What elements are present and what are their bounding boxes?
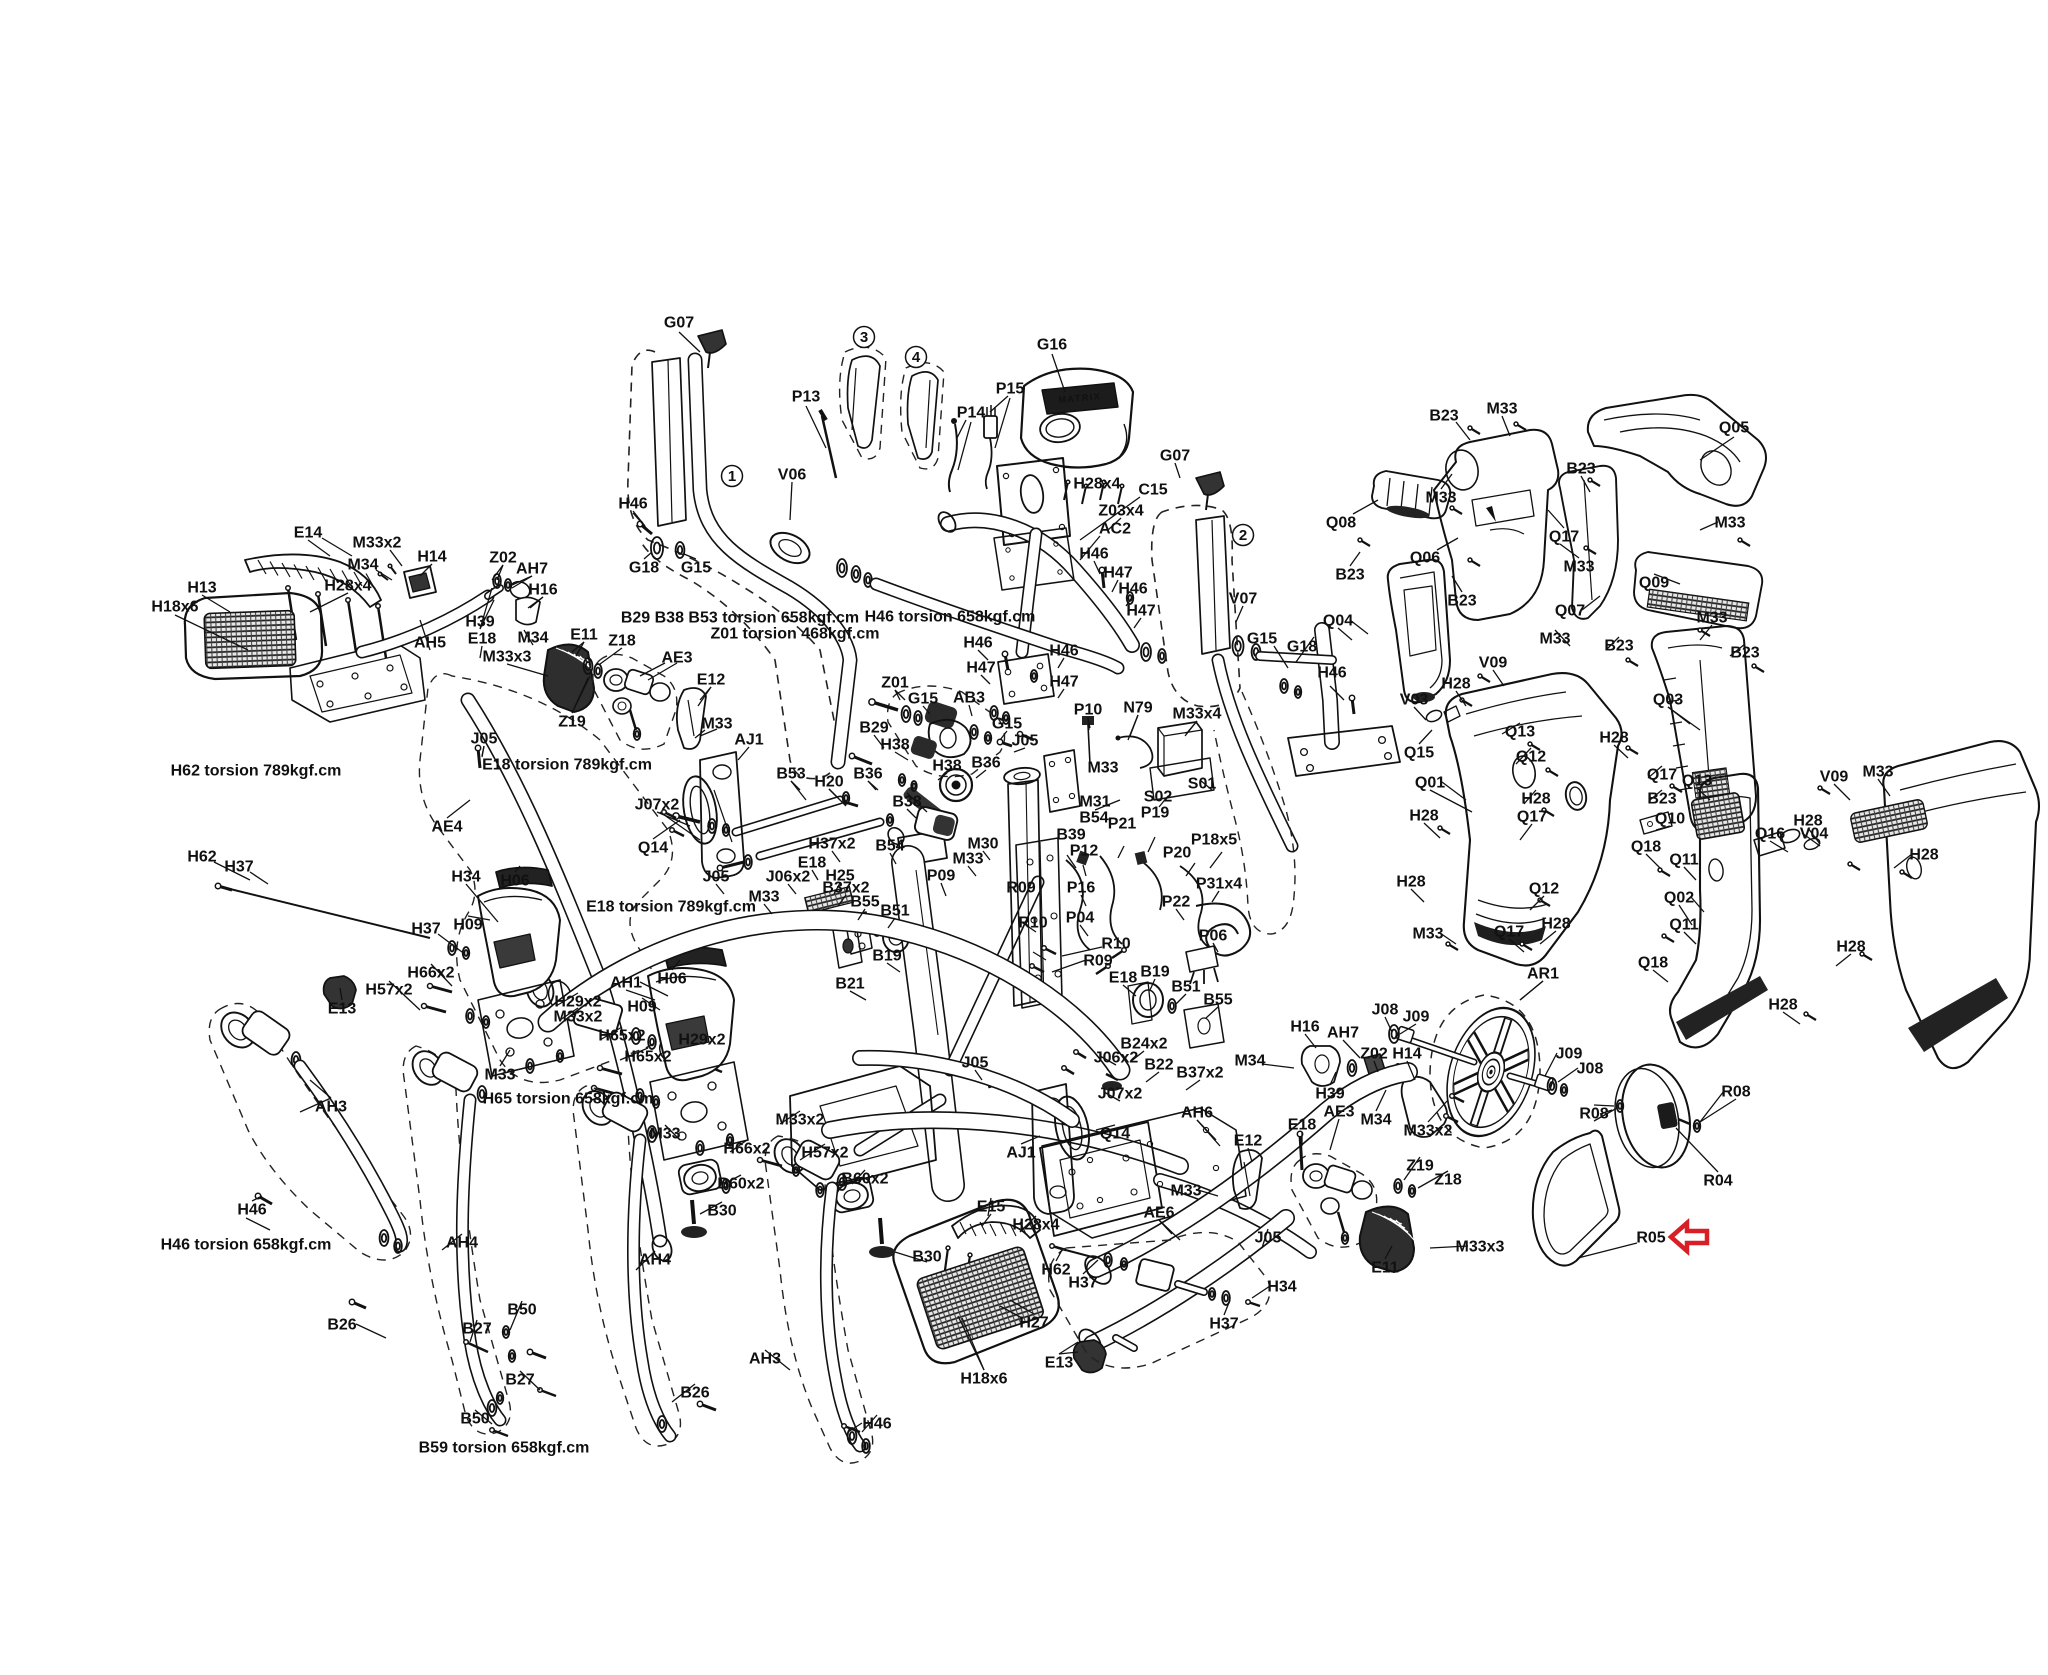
svg-text:R10: R10 — [1101, 936, 1130, 953]
svg-text:E11: E11 — [570, 627, 598, 644]
svg-text:B19: B19 — [1140, 964, 1169, 981]
svg-text:M34: M34 — [347, 557, 378, 574]
svg-text:AH7: AH7 — [1327, 1025, 1359, 1042]
svg-text:AH3: AH3 — [315, 1099, 347, 1116]
svg-text:B60x2: B60x2 — [841, 1171, 888, 1188]
svg-text:H47: H47 — [1103, 565, 1132, 582]
svg-text:B29 B38 B53 torsion 658kgf.cm: B29 B38 B53 torsion 658kgf.cm — [621, 610, 859, 627]
svg-text:M33x2: M33x2 — [776, 1112, 825, 1129]
svg-text:AE6: AE6 — [1143, 1205, 1174, 1222]
svg-text:Q05: Q05 — [1719, 420, 1749, 437]
svg-text:H28x4: H28x4 — [324, 578, 371, 595]
svg-text:S01: S01 — [1188, 776, 1217, 793]
svg-text:M34: M34 — [1234, 1053, 1265, 1070]
svg-text:J06x2: J06x2 — [766, 869, 811, 886]
svg-text:M33: M33 — [1486, 401, 1517, 418]
svg-text:H39: H39 — [1315, 1086, 1344, 1103]
svg-text:H28: H28 — [1521, 791, 1550, 808]
svg-text:Z01 torsion 468kgf.cm: Z01 torsion 468kgf.cm — [711, 626, 880, 643]
svg-text:J08: J08 — [1372, 1002, 1399, 1019]
svg-text:H09: H09 — [627, 999, 656, 1016]
svg-text:AJ1: AJ1 — [1006, 1145, 1035, 1162]
svg-text:1: 1 — [728, 468, 736, 485]
svg-text:G15: G15 — [1247, 631, 1277, 648]
svg-text:Z18: Z18 — [1434, 1172, 1462, 1189]
svg-text:M33: M33 — [1696, 610, 1727, 627]
svg-text:Q08: Q08 — [1326, 515, 1356, 532]
svg-text:R09: R09 — [1083, 953, 1112, 970]
svg-text:E11: E11 — [1371, 1260, 1399, 1277]
svg-text:M31: M31 — [1079, 794, 1110, 811]
svg-text:J05: J05 — [1012, 733, 1039, 750]
svg-text:Z01: Z01 — [881, 675, 909, 692]
svg-text:G15: G15 — [908, 691, 938, 708]
svg-text:M33: M33 — [1425, 490, 1456, 507]
svg-text:R04: R04 — [1703, 1173, 1732, 1190]
svg-text:P16: P16 — [1067, 880, 1096, 897]
svg-text:Z18: Z18 — [608, 633, 636, 650]
svg-text:H06: H06 — [500, 873, 529, 890]
svg-text:H65 torsion 658kgf.cm: H65 torsion 658kgf.cm — [483, 1091, 654, 1108]
svg-text:V09: V09 — [1820, 769, 1849, 786]
svg-text:Q15: Q15 — [1404, 745, 1434, 762]
svg-text:P22: P22 — [1162, 894, 1191, 911]
svg-text:Q17: Q17 — [1517, 809, 1547, 826]
svg-text:Z02: Z02 — [489, 550, 517, 567]
svg-text:G07: G07 — [664, 315, 694, 332]
svg-text:M33: M33 — [952, 851, 983, 868]
svg-text:J05: J05 — [962, 1055, 989, 1072]
svg-text:H06: H06 — [657, 971, 686, 988]
svg-text:J08: J08 — [1577, 1061, 1604, 1078]
svg-text:B54: B54 — [875, 838, 904, 855]
svg-text:B50: B50 — [507, 1302, 536, 1319]
svg-text:E12: E12 — [697, 672, 726, 689]
svg-text:V09: V09 — [1479, 655, 1508, 672]
svg-text:M33: M33 — [1539, 631, 1570, 648]
svg-text:V06: V06 — [778, 467, 807, 484]
svg-text:B23: B23 — [1604, 638, 1633, 655]
svg-text:B53: B53 — [776, 766, 805, 783]
svg-text:H29x2: H29x2 — [678, 1032, 725, 1049]
svg-text:M33: M33 — [484, 1067, 515, 1084]
svg-text:S02: S02 — [1144, 789, 1173, 806]
svg-text:M33: M33 — [748, 889, 779, 906]
svg-text:B23: B23 — [1447, 593, 1476, 610]
svg-text:J06x2: J06x2 — [1094, 1050, 1139, 1067]
svg-text:H37: H37 — [1068, 1275, 1097, 1292]
svg-text:H66x2: H66x2 — [723, 1141, 770, 1158]
svg-text:C15: C15 — [1138, 482, 1167, 499]
svg-text:B51: B51 — [1171, 979, 1200, 996]
svg-text:Q12: Q12 — [1516, 749, 1546, 766]
svg-text:G15: G15 — [681, 560, 711, 577]
svg-text:H46: H46 — [1317, 665, 1346, 682]
svg-text:4: 4 — [912, 349, 921, 366]
svg-text:H14: H14 — [417, 549, 446, 566]
svg-text:G07: G07 — [1160, 448, 1190, 465]
svg-text:J07x2: J07x2 — [635, 797, 680, 814]
svg-text:B19: B19 — [872, 948, 901, 965]
svg-text:Q13: Q13 — [1682, 773, 1712, 790]
svg-text:J05: J05 — [1255, 1230, 1282, 1247]
svg-text:P10: P10 — [1074, 702, 1103, 719]
svg-text:P04: P04 — [1066, 910, 1095, 927]
svg-text:H28x4: H28x4 — [1073, 476, 1120, 493]
svg-text:H37: H37 — [224, 859, 253, 876]
svg-text:P31x4: P31x4 — [1196, 876, 1242, 893]
svg-text:M33x3: M33x3 — [483, 649, 532, 666]
svg-text:M33: M33 — [649, 1126, 680, 1143]
svg-text:P21: P21 — [1108, 816, 1137, 833]
svg-text:E13: E13 — [1045, 1355, 1074, 1372]
svg-text:Q07: Q07 — [1555, 603, 1585, 620]
svg-text:Q11: Q11 — [1669, 917, 1698, 934]
svg-text:B26: B26 — [327, 1317, 356, 1334]
svg-text:M33x2: M33x2 — [353, 535, 402, 552]
svg-text:P18x5: P18x5 — [1191, 832, 1237, 849]
svg-text:E12: E12 — [1234, 1133, 1263, 1150]
svg-text:H18x6: H18x6 — [960, 1371, 1007, 1388]
svg-text:H28x4: H28x4 — [1012, 1217, 1059, 1234]
svg-text:R08: R08 — [1579, 1106, 1608, 1123]
svg-text:H28: H28 — [1396, 874, 1425, 891]
svg-text:G16: G16 — [1037, 337, 1067, 354]
svg-text:3: 3 — [860, 329, 868, 346]
svg-text:P06: P06 — [1199, 928, 1228, 945]
svg-text:B23: B23 — [1335, 567, 1364, 584]
svg-text:B54: B54 — [1079, 810, 1108, 827]
svg-text:M34: M34 — [1360, 1112, 1391, 1129]
svg-text:R09: R09 — [1006, 880, 1035, 897]
svg-text:H34: H34 — [451, 869, 480, 886]
svg-text:H14: H14 — [1392, 1046, 1421, 1063]
svg-text:AE3: AE3 — [661, 650, 692, 667]
svg-text:B23: B23 — [1566, 461, 1595, 478]
svg-text:G18: G18 — [629, 560, 659, 577]
svg-text:V03: V03 — [1400, 692, 1429, 709]
svg-text:B55: B55 — [1203, 992, 1232, 1009]
svg-text:AE3: AE3 — [1323, 1104, 1354, 1121]
svg-text:H38: H38 — [880, 737, 909, 754]
svg-text:H28: H28 — [1541, 916, 1570, 933]
svg-text:H16: H16 — [528, 582, 557, 599]
svg-text:H28: H28 — [1768, 997, 1797, 1014]
svg-text:M33: M33 — [1563, 559, 1594, 576]
svg-text:H46: H46 — [618, 496, 647, 513]
svg-text:AR1: AR1 — [1527, 966, 1559, 983]
svg-text:Z19: Z19 — [558, 714, 586, 731]
svg-text:Q06: Q06 — [1410, 550, 1440, 567]
svg-text:E18: E18 — [468, 631, 497, 648]
svg-text:Q11: Q11 — [1669, 852, 1698, 869]
svg-text:H46: H46 — [237, 1202, 266, 1219]
svg-text:H37x2: H37x2 — [808, 836, 855, 853]
svg-text:2: 2 — [1239, 527, 1247, 544]
svg-text:H46: H46 — [862, 1416, 891, 1433]
svg-text:Q09: Q09 — [1639, 575, 1669, 592]
svg-text:H47: H47 — [1049, 674, 1078, 691]
svg-text:M33: M33 — [1714, 515, 1745, 532]
svg-text:G15: G15 — [992, 716, 1022, 733]
svg-text:H62: H62 — [187, 849, 216, 866]
svg-text:Q17: Q17 — [1494, 924, 1524, 941]
svg-text:M33: M33 — [1170, 1183, 1201, 1200]
svg-text:P19: P19 — [1141, 805, 1170, 822]
svg-text:H46 torsion 658kgf.cm: H46 torsion 658kgf.cm — [161, 1237, 332, 1254]
svg-text:AH4: AH4 — [639, 1252, 671, 1269]
svg-text:J05: J05 — [703, 869, 730, 886]
svg-text:AH6: AH6 — [1181, 1105, 1213, 1122]
svg-text:M33x3: M33x3 — [1456, 1239, 1505, 1256]
svg-text:J07x2: J07x2 — [1098, 1086, 1143, 1103]
svg-text:B51: B51 — [880, 903, 909, 920]
svg-text:E18: E18 — [1109, 970, 1138, 987]
svg-text:H34: H34 — [1267, 1279, 1296, 1296]
svg-text:H28: H28 — [1836, 939, 1865, 956]
svg-text:H16: H16 — [1290, 1019, 1319, 1036]
svg-text:Q10: Q10 — [1655, 811, 1685, 828]
svg-text:H13: H13 — [187, 580, 216, 597]
svg-text:AH7: AH7 — [516, 561, 548, 578]
svg-text:B39: B39 — [1056, 827, 1085, 844]
svg-text:B36: B36 — [971, 755, 1000, 772]
svg-text:E18 torsion 789kgf.cm: E18 torsion 789kgf.cm — [586, 899, 756, 916]
svg-text:H62 torsion 789kgf.cm: H62 torsion 789kgf.cm — [171, 763, 342, 780]
svg-text:H28: H28 — [1909, 847, 1938, 864]
svg-text:P09: P09 — [927, 868, 956, 885]
svg-text:B21: B21 — [835, 976, 864, 993]
svg-text:Q01: Q01 — [1415, 775, 1445, 792]
svg-text:B26: B26 — [680, 1385, 709, 1402]
svg-text:H62: H62 — [1041, 1262, 1070, 1279]
svg-text:H46: H46 — [1118, 581, 1147, 598]
svg-text:M33: M33 — [701, 716, 732, 733]
svg-text:P12: P12 — [1070, 843, 1099, 860]
svg-text:H37: H37 — [411, 921, 440, 938]
svg-text:B30: B30 — [707, 1203, 736, 1220]
svg-text:M33: M33 — [1862, 764, 1893, 781]
svg-text:H47: H47 — [966, 660, 995, 677]
svg-text:J09: J09 — [1403, 1009, 1430, 1026]
svg-text:H28: H28 — [1599, 730, 1628, 747]
svg-text:H66x2: H66x2 — [407, 965, 454, 982]
svg-text:AE4: AE4 — [431, 819, 462, 836]
svg-text:B55: B55 — [850, 894, 879, 911]
svg-text:E18: E18 — [1288, 1117, 1317, 1134]
svg-text:M33x2: M33x2 — [554, 1009, 603, 1026]
svg-text:P15: P15 — [996, 381, 1025, 398]
svg-text:P13: P13 — [792, 389, 821, 406]
svg-text:B30: B30 — [912, 1249, 941, 1266]
svg-text:B29: B29 — [859, 720, 888, 737]
svg-text:H28: H28 — [1441, 676, 1470, 693]
svg-text:H18x6: H18x6 — [151, 599, 198, 616]
svg-text:H37: H37 — [1209, 1316, 1238, 1333]
svg-text:H46: H46 — [1079, 546, 1108, 563]
svg-text:E18 torsion 789kgf.cm: E18 torsion 789kgf.cm — [482, 757, 652, 774]
svg-text:V07: V07 — [1229, 591, 1258, 608]
svg-text:H20: H20 — [814, 774, 843, 791]
svg-text:H57x2: H57x2 — [801, 1145, 848, 1162]
svg-text:Q18: Q18 — [1638, 955, 1668, 972]
svg-text:Q13: Q13 — [1505, 724, 1535, 741]
svg-text:E14: E14 — [294, 525, 323, 542]
svg-text:H46 torsion 658kgf.cm: H46 torsion 658kgf.cm — [865, 609, 1036, 626]
svg-text:H38: H38 — [932, 758, 961, 775]
svg-text:N79: N79 — [1123, 700, 1152, 717]
svg-text:H46: H46 — [963, 635, 992, 652]
svg-text:M33x4: M33x4 — [1173, 706, 1222, 723]
svg-text:M33: M33 — [1412, 926, 1443, 943]
svg-text:Q12: Q12 — [1529, 881, 1559, 898]
svg-text:B59 torsion 658kgf.cm: B59 torsion 658kgf.cm — [419, 1440, 590, 1457]
svg-text:H28: H28 — [1409, 808, 1438, 825]
svg-text:AH1: AH1 — [610, 975, 642, 992]
svg-text:M33: M33 — [1087, 760, 1118, 777]
svg-text:AB3: AB3 — [953, 690, 985, 707]
svg-text:M33x2: M33x2 — [1404, 1123, 1453, 1140]
svg-text:B36: B36 — [853, 766, 882, 783]
svg-text:B23: B23 — [1429, 408, 1458, 425]
svg-text:Q18: Q18 — [1631, 839, 1661, 856]
svg-text:Q16: Q16 — [1755, 826, 1785, 843]
svg-text:Q04: Q04 — [1323, 613, 1353, 630]
svg-text:Q03: Q03 — [1653, 692, 1683, 709]
svg-text:Q02: Q02 — [1664, 890, 1694, 907]
svg-text:Q14: Q14 — [638, 840, 668, 857]
svg-text:R05: R05 — [1636, 1230, 1665, 1247]
svg-text:B22: B22 — [1144, 1057, 1173, 1074]
svg-text:E13: E13 — [328, 1001, 357, 1018]
svg-text:R08: R08 — [1721, 1084, 1750, 1101]
svg-text:H09: H09 — [453, 917, 482, 934]
svg-text:H46: H46 — [1049, 643, 1078, 660]
svg-text:B37x2: B37x2 — [1176, 1065, 1223, 1082]
svg-text:AJ1: AJ1 — [734, 732, 763, 749]
svg-text:P20: P20 — [1163, 845, 1192, 862]
svg-text:H47: H47 — [1126, 603, 1155, 620]
svg-text:P14: P14 — [957, 405, 986, 422]
svg-text:Z02: Z02 — [1360, 1046, 1388, 1063]
svg-text:H27: H27 — [1019, 1315, 1048, 1332]
svg-text:B27: B27 — [462, 1321, 491, 1338]
svg-text:H65x2: H65x2 — [624, 1049, 671, 1066]
svg-text:J05: J05 — [471, 731, 498, 748]
svg-text:Q17: Q17 — [1549, 529, 1579, 546]
